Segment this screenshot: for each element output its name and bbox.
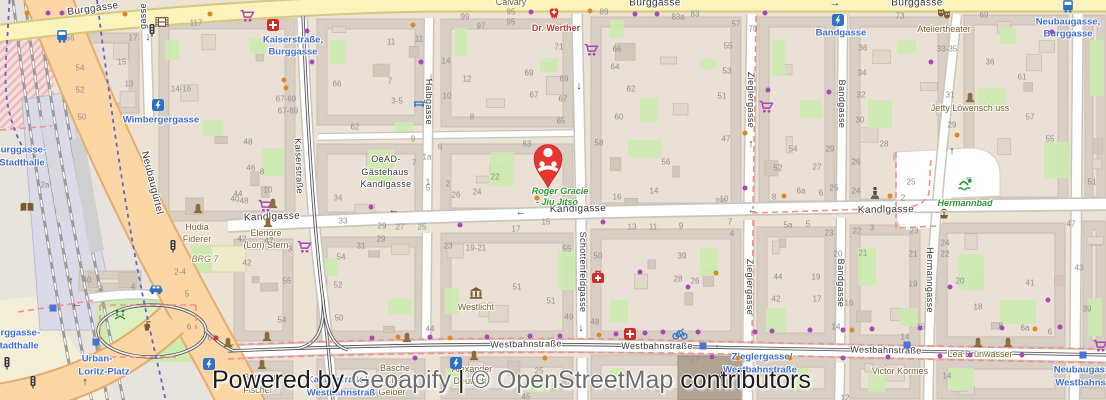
traffic-icon: [148, 24, 157, 37]
house-number: 4: [730, 230, 734, 239]
house-number: 67-69: [278, 107, 298, 116]
poi-label: Dr. Werther: [532, 23, 580, 33]
house-number: 50: [594, 252, 603, 261]
house-number: 2-4: [174, 268, 186, 277]
oneway-arrow-icon: ↓: [428, 71, 434, 83]
cart-icon: [297, 240, 312, 255]
shop-dot: [448, 336, 453, 341]
house-number: 5: [185, 290, 189, 299]
shop-dot: [485, 335, 490, 340]
pharmacy-icon: [623, 327, 637, 341]
transit-label: Bandgasse: [816, 28, 867, 39]
oneway-arrow-icon: →: [710, 339, 721, 351]
house-number: 36: [859, 44, 868, 53]
memorial-icon: [1002, 335, 1015, 348]
house-number: 31: [357, 242, 366, 251]
house-number: 30: [856, 116, 865, 125]
house-number: 20: [834, 250, 843, 259]
house-number: 69: [560, 75, 569, 84]
shop-dot: [710, 355, 715, 360]
shop-dot: [529, 10, 534, 15]
poi-label: Jetty Löwensch uss: [931, 103, 1010, 113]
house-number: 6: [187, 323, 191, 332]
street-label: gasse: [138, 3, 148, 29]
house-number: 6: [438, 143, 442, 152]
cart-icon: [240, 9, 255, 24]
house-number: 29: [826, 145, 835, 154]
house-number: 11: [415, 35, 423, 44]
house-number: 23: [444, 242, 453, 251]
drink-icon: [141, 320, 154, 333]
house-number: 11: [387, 38, 395, 47]
house-number: 22: [853, 227, 862, 236]
transit-label: Burggasse-: [0, 328, 40, 339]
house-number: 69: [980, 11, 989, 20]
house-number: 22: [491, 173, 500, 182]
house-number: 24: [941, 239, 950, 248]
house-number: 33-35: [937, 45, 957, 54]
house-number: 42: [238, 235, 247, 244]
house-number: 67: [530, 91, 539, 100]
poi-label: Lea Brunwasser: [947, 349, 1012, 359]
map-canvas[interactable]: BurggasseBurggasseBurggasseKandlgasseKan…: [0, 0, 1106, 400]
house-number: 49: [565, 313, 574, 322]
house-number: 2: [446, 180, 450, 189]
house-number: 89: [600, 8, 609, 17]
house-number: 73: [896, 12, 905, 21]
map-marker[interactable]: [521, 138, 575, 190]
traffic-icon: [3, 357, 12, 370]
house-number: 62: [351, 123, 360, 132]
house-number: 60: [615, 113, 624, 122]
shop-dot: [588, 9, 593, 14]
oneway-arrow-icon: ↓: [578, 322, 584, 334]
house-number: 10: [264, 186, 273, 195]
openstreetmap-link[interactable]: © OpenStreetMap: [471, 366, 673, 394]
house-number: 7: [728, 218, 732, 227]
house-number: 51: [1088, 178, 1097, 187]
oneway-arrow-icon: ↑: [68, 275, 74, 287]
house-number: 58: [595, 139, 604, 148]
shop-dot: [929, 60, 934, 65]
shop-dot: [782, 194, 787, 199]
house-number: 66: [333, 80, 342, 89]
poi-label: Gästehaus: [361, 167, 408, 177]
house-number: 19-21: [466, 244, 486, 253]
shop-dot: [696, 330, 701, 335]
transit-label: Westbahnstr: [1055, 378, 1106, 389]
cart-icon: [759, 100, 774, 115]
house-number: 10: [443, 92, 452, 101]
shop-dot: [655, 12, 660, 17]
house-number: 4: [131, 283, 135, 292]
house-number: 57: [1026, 113, 1035, 122]
house-number: 95: [507, 18, 516, 27]
house-number: 56: [662, 158, 671, 167]
bike-icon: [672, 325, 689, 342]
house-number: 50: [335, 314, 344, 323]
stop-icon: [1080, 352, 1087, 359]
poi-label: Ateliertheater: [917, 24, 971, 34]
house-number: 14: [901, 333, 910, 342]
oneway-arrow-icon: ←: [748, 204, 759, 216]
cart-icon: [584, 43, 599, 58]
house-number: 52: [76, 86, 85, 95]
street-label: Zieglergasse: [746, 72, 756, 128]
shop-dot: [968, 353, 973, 358]
house-number: 5a: [784, 221, 793, 230]
house-number: 13: [125, 80, 134, 89]
house-number: 5: [806, 220, 810, 229]
cart-icon: [1093, 339, 1106, 354]
house-number: 10: [720, 195, 729, 204]
house-number: 3: [870, 224, 874, 233]
shop-dot: [282, 78, 287, 83]
house-number: 17: [813, 295, 822, 304]
shop-dot: [428, 335, 433, 340]
street-label: Burggasse: [629, 0, 680, 9]
house-number: 55: [1046, 135, 1055, 144]
poi-label: Kandlgasse: [360, 179, 411, 189]
house-number: 54: [337, 253, 346, 262]
house-number: 48: [591, 318, 600, 327]
house-number: 8: [470, 113, 474, 122]
bus-icon: [1061, 0, 1076, 14]
attribution-powered-by: Powered by: [212, 366, 344, 394]
statue-icon: [868, 186, 882, 200]
stop-icon: [700, 343, 707, 350]
shop-dot: [543, 356, 548, 361]
house-number: 26: [852, 158, 861, 167]
dentist-icon: [547, 7, 562, 22]
house-number: 14: [442, 57, 451, 66]
house-number: 26: [691, 277, 700, 286]
house-number: 41: [1026, 279, 1035, 288]
house-number: 32: [857, 91, 866, 100]
house-number: 17: [512, 225, 521, 234]
house-number: 39: [678, 252, 687, 261]
house-number: 54: [278, 316, 287, 325]
house-number: 67-69: [276, 95, 296, 104]
marker-label: - Jiu Jitso: [536, 197, 578, 207]
street-label: Hermanngasse: [925, 247, 935, 313]
shop-dot: [763, 11, 768, 16]
memorial-icon: [972, 335, 985, 348]
transit-label: Stadthalle: [0, 341, 39, 352]
street-label: Schottenfeldgasse: [578, 232, 588, 313]
house-number: 27: [396, 223, 405, 232]
shop-dot: [1033, 327, 1038, 332]
memorial-icon: [468, 348, 481, 361]
street-label: Bandgasse: [837, 80, 847, 129]
oneway-arrow-icon: ↑: [748, 138, 754, 150]
house-number: 15: [118, 58, 127, 67]
transit-label: Burggasse-: [0, 145, 46, 156]
shop-dot: [736, 356, 741, 361]
house-number: 62: [627, 85, 636, 94]
shop-dot: [888, 194, 893, 199]
house-number: 29: [378, 222, 387, 231]
house-number: 83: [691, 10, 700, 19]
attribution-contributors: contributors: [680, 366, 811, 394]
fountain-icon: [937, 207, 951, 221]
transit-label: Kaiserstraße,: [263, 35, 323, 46]
shop-dot: [310, 60, 315, 65]
shop-dot: [614, 332, 619, 337]
memorial-icon: [401, 330, 414, 343]
shop-dot: [601, 220, 606, 225]
shop-dot: [1000, 326, 1005, 331]
shop-dot: [948, 285, 953, 290]
memorial-icon: [262, 215, 275, 228]
attribution: Powered by Geoapify | © OpenStreetMap co…: [212, 366, 811, 395]
house-number: 9: [411, 135, 415, 144]
shop-dot: [60, 11, 65, 16]
house-number: 13: [628, 223, 637, 232]
oneway-arrow-icon: ↑: [82, 376, 88, 388]
shop-dot: [1046, 298, 1051, 303]
house-number: 70: [749, 25, 758, 34]
shop-dot: [766, 88, 771, 93]
house-number: 7: [412, 159, 416, 168]
shop-dot: [918, 326, 923, 331]
poi-label: Fiderer: [183, 234, 212, 244]
house-number: 25: [830, 184, 839, 193]
shop-dot: [419, 60, 424, 65]
poi-label: BRG 7: [191, 254, 218, 264]
transit-label: Neubaugasse,: [1036, 17, 1100, 28]
house-number: 66: [613, 45, 622, 54]
house-number: 53: [723, 67, 732, 76]
stop-icon: [904, 342, 911, 349]
street-label: Zieglergasse: [745, 259, 755, 315]
transit-label: Wimbergergasse: [123, 115, 199, 126]
playground-icon: [112, 307, 128, 323]
house-number: 27: [813, 163, 822, 172]
house-number: 52: [334, 281, 343, 290]
shop-dot: [850, 328, 855, 333]
shop-dot: [827, 90, 832, 95]
house-number: 54: [76, 64, 85, 73]
house-number: 3: [288, 245, 292, 254]
oneway-arrow-icon: ←: [516, 206, 527, 218]
house-number: 55: [283, 277, 292, 286]
shop-dot: [46, 11, 51, 16]
shop-dot: [643, 331, 648, 336]
house-number: 8: [772, 193, 776, 202]
house-number: 6a: [797, 187, 806, 196]
house-number: 23: [825, 229, 834, 238]
house-number: 34: [858, 69, 867, 78]
shop-dot: [661, 330, 666, 335]
house-number: 54: [789, 145, 798, 154]
house-number: 6: [1048, 328, 1052, 337]
shop-dot: [1020, 353, 1025, 358]
transit-label: Zieglergasse/: [732, 352, 793, 363]
shop-dot: [214, 336, 219, 341]
house-number: 29: [377, 235, 386, 244]
house-number: 28: [674, 275, 683, 284]
shop-dot: [955, 133, 960, 138]
house-number: 46: [247, 164, 256, 173]
memorial-icon: [192, 201, 205, 214]
museum-icon: [469, 286, 484, 301]
house-number: 24: [473, 188, 482, 197]
shop-dot: [638, 270, 643, 275]
house-number: 21: [859, 249, 868, 258]
map-labels-layer: BurggasseBurggasseBurggasseKandlgasseKan…: [0, 0, 1106, 400]
memorial-icon: [964, 90, 977, 103]
house-number: 34: [334, 194, 343, 203]
shop-dot: [743, 131, 748, 136]
street-label: Burggasse: [891, 0, 942, 9]
street-label: Westbahnstraße: [490, 338, 562, 349]
oneway-arrow-icon: ↑: [949, 145, 955, 157]
attribution-separator: |: [458, 366, 465, 394]
house-number: 25: [418, 223, 427, 232]
shop-dot: [714, 271, 719, 276]
house-number: 17: [691, 356, 700, 365]
house-number: 2a: [41, 181, 50, 190]
shop-dot: [886, 355, 891, 360]
house-number: 16: [845, 299, 854, 308]
hospital-icon: [591, 270, 605, 284]
shop-dot: [528, 334, 533, 339]
house-number: 14: [832, 323, 841, 332]
house-number: 43: [1075, 264, 1084, 273]
house-number: 23: [910, 227, 919, 236]
house-number: 31: [946, 91, 955, 100]
house-number: 25: [907, 178, 916, 187]
house-number: 15: [542, 218, 551, 227]
house-number: 64: [611, 63, 620, 72]
taxi-icon: [148, 280, 164, 296]
house-number: 33: [339, 217, 348, 226]
house-number: 1: [426, 178, 430, 187]
house-number: 21: [909, 250, 918, 259]
house-number: 12: [841, 394, 850, 400]
ev-icon: [831, 13, 845, 27]
shop-dot: [1050, 30, 1055, 35]
house-number: 44: [774, 273, 783, 282]
house-number: 47: [1067, 220, 1076, 229]
shop-dot: [597, 333, 602, 338]
house-number: 19: [812, 273, 821, 282]
stop-icon: [93, 339, 100, 346]
memorial-icon: [261, 329, 274, 342]
transit-label: Urban-: [82, 354, 113, 365]
house-number: 14: [650, 187, 659, 196]
house-number: 48: [244, 138, 253, 147]
house-number: 24: [852, 187, 861, 196]
house-number: 3-5: [391, 97, 403, 106]
house-number: 40: [83, 276, 92, 285]
transit-label: Stadthalle: [0, 158, 45, 169]
street-label: Halbgasse: [424, 79, 434, 125]
oneway-arrow-icon: ←: [389, 204, 400, 216]
house-number: 83a: [671, 13, 684, 22]
oneway-arrow-icon: ↓: [576, 80, 582, 92]
shop-dot: [123, 12, 128, 17]
house-number: 19: [909, 280, 918, 289]
stop-icon: [50, 305, 57, 312]
house-number: 71: [555, 43, 564, 52]
house-number: 42: [243, 259, 252, 268]
street-label: Kandlgasse: [858, 204, 914, 216]
house-number: 44: [426, 325, 435, 334]
house-number: 1a: [423, 153, 432, 162]
house-number: 16: [613, 193, 622, 202]
house-number: 47: [265, 237, 274, 246]
shop-dot: [686, 285, 691, 290]
house-number: 48: [240, 197, 249, 206]
house-number: 65: [557, 117, 566, 126]
house-number: 18: [974, 303, 983, 312]
house-number: 50: [78, 113, 87, 122]
house-number: 51: [513, 283, 522, 292]
house-number: 42: [772, 295, 781, 304]
house-number: 3: [99, 285, 103, 294]
swimmer-icon: ss: [958, 176, 975, 193]
street-label: Burggasse: [67, 0, 119, 18]
house-number: 69: [525, 69, 534, 78]
house-number: 55: [563, 245, 572, 254]
house-number: 11: [649, 223, 657, 232]
house-number: 9: [679, 222, 683, 231]
house-number: 26: [452, 191, 461, 200]
pharmacy-icon: [266, 18, 280, 32]
geoapify-link[interactable]: Geoapify: [351, 366, 451, 394]
poi-label: OeAD-: [371, 154, 401, 164]
shop-dot: [938, 354, 943, 359]
shop-dot: [411, 23, 416, 28]
house-number: 40: [231, 195, 240, 204]
house-number: 2: [901, 194, 905, 203]
memorial-icon: [222, 335, 235, 348]
ev-icon: [151, 98, 165, 112]
house-number: 28: [880, 140, 889, 149]
house-number: 7: [388, 77, 392, 86]
shop-dot: [413, 356, 418, 361]
house-number: 57: [732, 20, 741, 29]
house-number: 99: [461, 13, 470, 22]
house-number: 36: [986, 58, 995, 67]
poi-label: Hudia: [185, 222, 209, 232]
shop-dot: [305, 29, 310, 34]
house-number: 20: [956, 277, 965, 286]
masks-icon: [936, 6, 952, 22]
traffic-icon: [29, 376, 38, 389]
transit-label: Burggasse: [268, 47, 317, 58]
house-number: 14-16: [171, 85, 191, 94]
oneway-arrow-icon: ←: [72, 298, 83, 310]
street-label: Westbahnstraße: [621, 341, 692, 351]
house-number: 97: [477, 22, 486, 31]
street-label: Kaiserstraße: [293, 138, 305, 194]
shop-dot: [25, 11, 30, 16]
oneway-arrow-icon: →: [830, 0, 841, 9]
house-number: 55: [724, 42, 733, 51]
house-number: 47: [722, 135, 731, 144]
poi-label: Westlicht: [458, 302, 494, 312]
house-number: 39: [1083, 305, 1092, 314]
book-icon: [19, 200, 36, 217]
shop-dot: [633, 12, 638, 17]
shop-dot: [841, 328, 846, 333]
shop-dot: [788, 356, 793, 361]
house-number: 6: [819, 189, 823, 198]
house-number: 8: [260, 168, 264, 177]
